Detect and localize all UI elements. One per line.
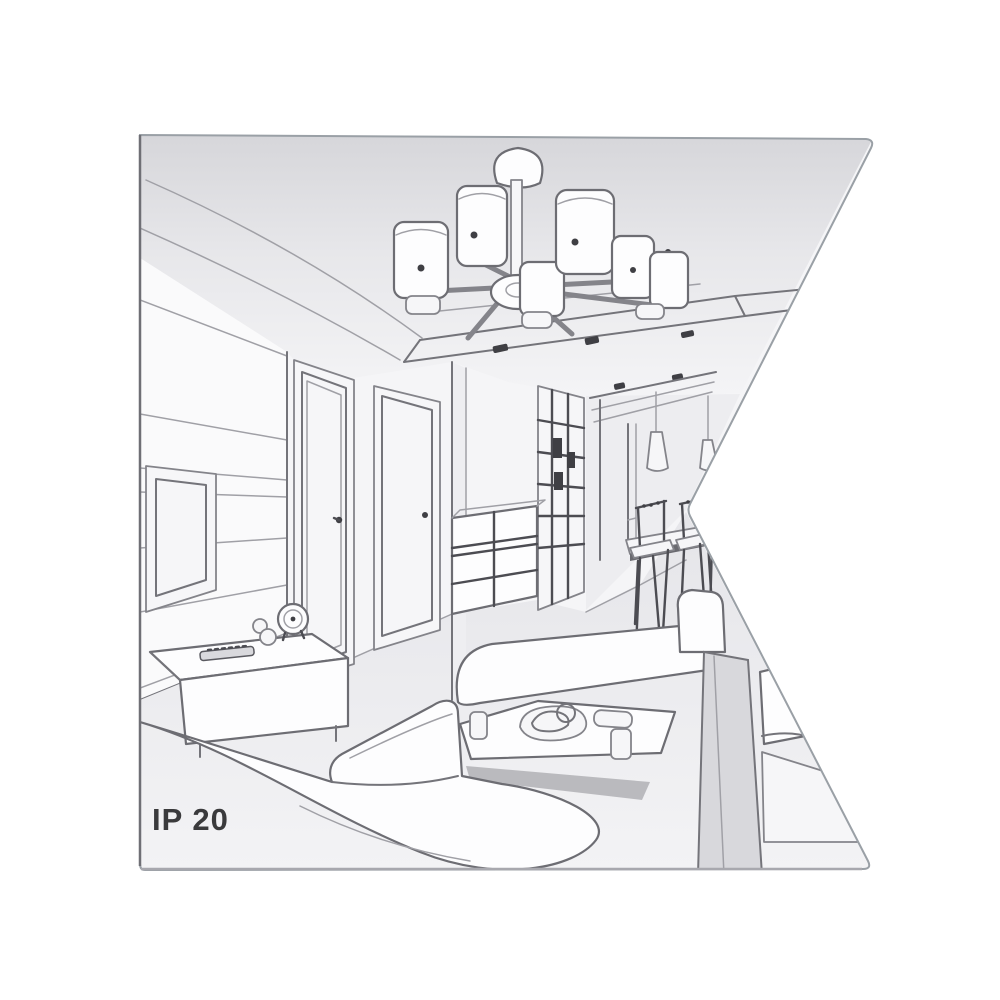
hallway-wardrobe (538, 386, 584, 610)
cup (611, 729, 631, 759)
sofa-right (678, 590, 880, 875)
door-handle (422, 512, 428, 518)
cup (470, 712, 487, 739)
ip-rating-label: IP 20 (152, 802, 229, 838)
door-right (374, 386, 440, 650)
drawer-chest (452, 500, 545, 614)
room-sketch (0, 0, 1000, 1000)
product-illustration: IP 20 (0, 0, 1000, 1000)
tv-screen (146, 466, 216, 612)
tray (593, 710, 632, 729)
